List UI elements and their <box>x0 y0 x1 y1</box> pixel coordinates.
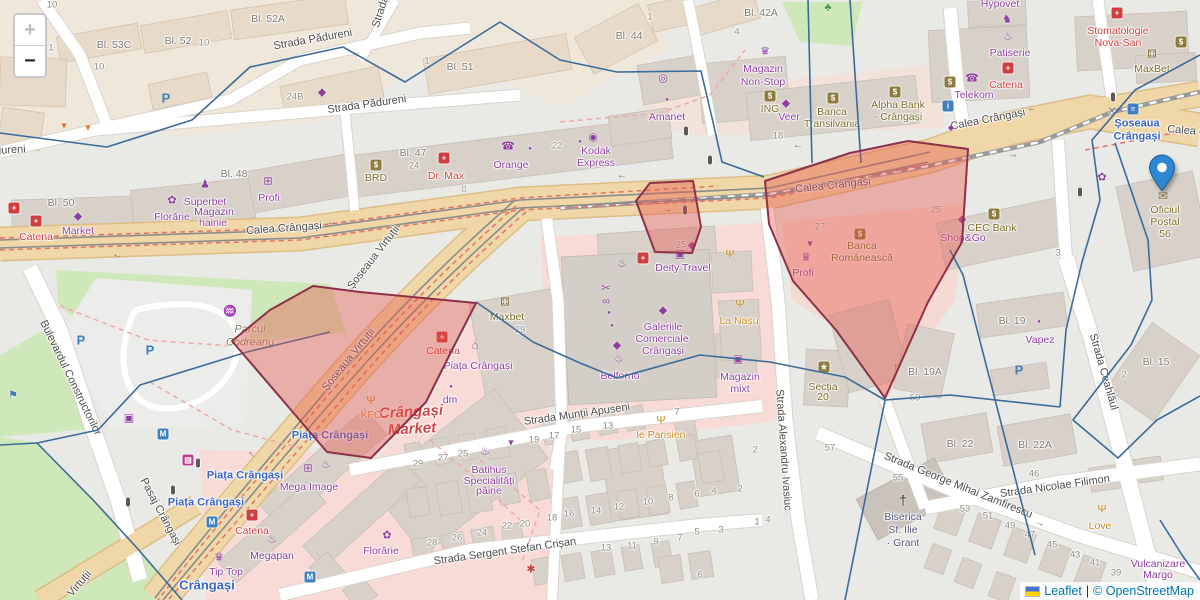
map-canvas[interactable]: Strada PădureniStrada PădureniStrada Păd… <box>0 0 1200 600</box>
zoom-out-button[interactable]: − <box>15 45 45 76</box>
highlight-polygon <box>636 181 701 253</box>
boundary-line <box>0 22 764 177</box>
osm-link[interactable]: © OpenStreetMap <box>1093 584 1194 598</box>
boundary-line <box>37 443 182 600</box>
attribution-bar: Leaflet | © OpenStreetMap <box>1020 582 1200 600</box>
highlight-polygon <box>765 141 968 398</box>
zoom-control: + − <box>13 13 47 78</box>
boundary-line <box>476 302 1060 407</box>
boundary-line <box>1060 55 1200 407</box>
boundary-line <box>850 0 861 163</box>
boundary-line <box>1160 520 1200 580</box>
map-marker-icon[interactable] <box>1148 154 1176 192</box>
attribution-separator: | <box>1086 584 1089 598</box>
boundary-line <box>845 400 885 600</box>
zoom-in-button[interactable]: + <box>15 15 45 45</box>
map-overlay-layer <box>0 0 1200 600</box>
highlight-polygon <box>232 286 476 458</box>
boundary-line <box>0 443 37 445</box>
ukraine-flag-icon <box>1025 586 1040 597</box>
leaflet-link[interactable]: Leaflet <box>1044 584 1082 598</box>
boundary-line <box>808 0 812 163</box>
boundary-line <box>1073 143 1200 458</box>
